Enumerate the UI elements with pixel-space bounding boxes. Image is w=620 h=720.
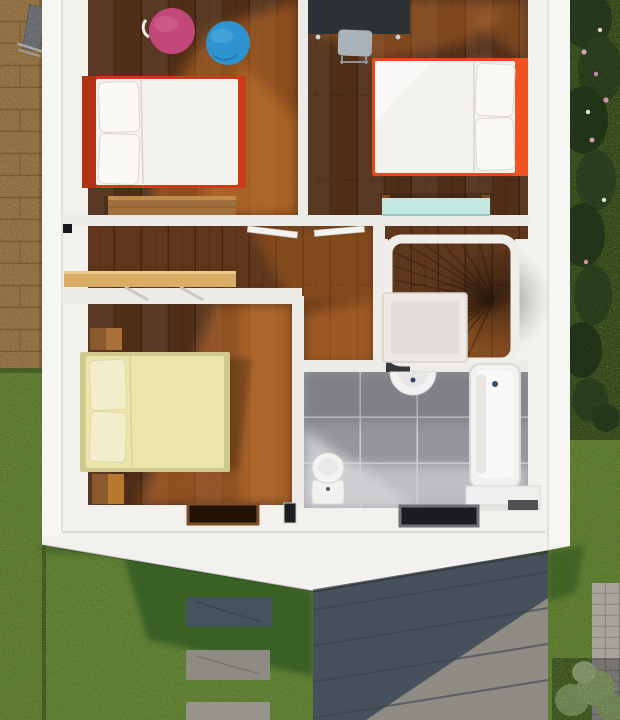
pouf-blue: [206, 21, 250, 65]
pillow: [89, 359, 127, 410]
roof-window-master: [188, 504, 258, 524]
door-slot-mark: [284, 503, 296, 523]
bed-red: [82, 76, 246, 188]
slab-rim-left: [42, 0, 62, 537]
dresser: [104, 196, 236, 215]
wall-between-bedrooms: [298, 0, 308, 215]
wall-master-top: [62, 288, 302, 304]
grass-grain-left: [0, 0, 46, 720]
stepping-stone-3: [186, 702, 270, 720]
nightstand-bottom: [92, 474, 124, 504]
slab-rim-right: [548, 0, 570, 546]
pillow: [98, 133, 140, 184]
stair-railing-inner: [383, 293, 467, 362]
wall-corner-mark: [63, 224, 72, 233]
hedge-grain: [566, 0, 620, 440]
shrub: [552, 658, 620, 720]
nightstand-top: [90, 328, 122, 350]
pillow: [475, 117, 515, 170]
wall-hallway-top: [62, 215, 530, 226]
bathtub: [470, 364, 520, 488]
teal-table: [380, 193, 492, 216]
bed-orange: [372, 58, 528, 176]
toilet: [312, 453, 344, 504]
wall-master-right: [292, 296, 304, 508]
pillow: [475, 63, 516, 117]
floor-plan-render: [0, 0, 620, 720]
bed-orange-headboard: [514, 58, 528, 176]
bed-cream: [80, 352, 230, 472]
pillow: [98, 81, 140, 132]
bed-red-headboard: [82, 76, 96, 188]
pillow: [89, 411, 127, 462]
roof-window-bathroom: [400, 506, 478, 526]
